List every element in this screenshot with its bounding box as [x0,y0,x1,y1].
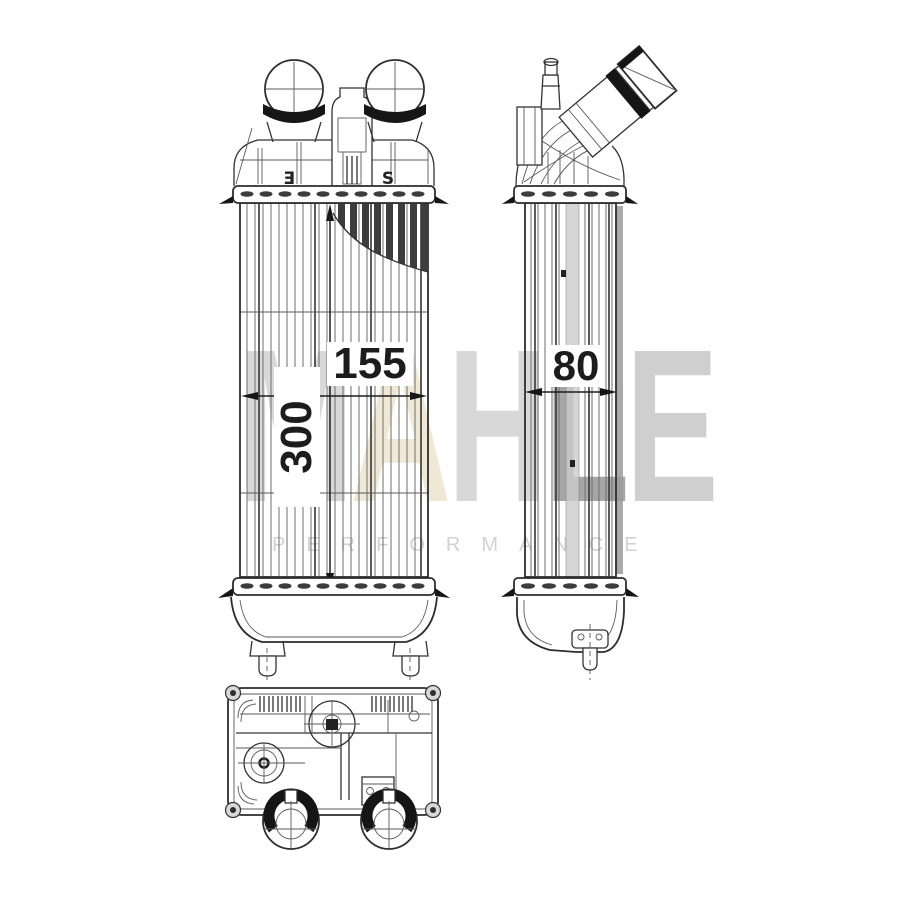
front-top-header [219,186,449,204]
outlet-marking: S [382,169,394,189]
side-bottom-tank [517,597,624,680]
dimension-height-label: 300 [274,367,320,507]
front-core [240,203,428,577]
front-center-bracket [332,88,372,186]
front-inlet-port [263,60,325,142]
side-bottom-header [501,578,639,597]
intercooler-diagram: Ǝ S [0,0,900,900]
bottom-outlet-port [361,790,417,849]
dimension-width-label: 155 [327,342,413,386]
bottom-inlet-port [263,790,319,849]
side-angled-pipe [557,46,676,159]
side-top-header [502,186,638,204]
technical-drawing-canvas: MAHLE PERFORMANCE [0,0,900,900]
bottom-view [226,686,441,850]
dimension-depth-label: 80 [548,345,604,387]
side-stub-pipe [541,59,560,110]
front-outlet-port [364,60,426,142]
inlet-marking: Ǝ [283,169,295,189]
side-top-tank [516,46,676,186]
front-bottom-tank [231,597,437,681]
front-bottom-header [218,578,450,598]
